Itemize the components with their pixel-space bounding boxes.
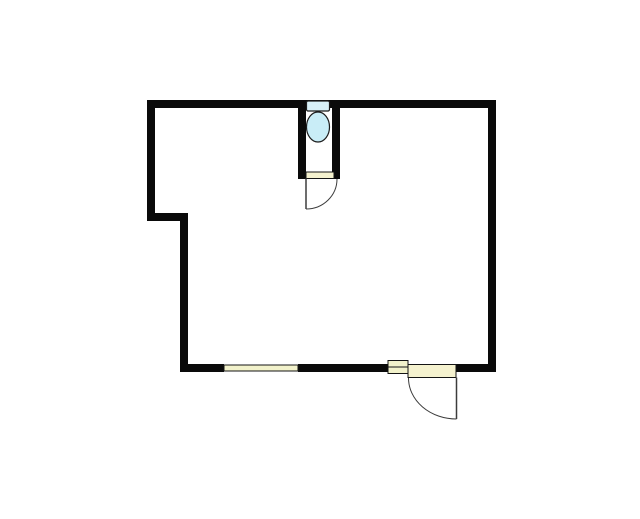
- entry-door-threshold: [408, 365, 456, 378]
- floor-plan-canvas: [0, 0, 640, 519]
- wc-door-swing-arc: [306, 179, 337, 209]
- wall-bottom-right: [456, 364, 496, 372]
- toilet-bowl: [307, 112, 330, 142]
- entry-door-swing-arc: [409, 378, 457, 419]
- window-bottom: [224, 365, 298, 371]
- wall-bottom-middle: [298, 364, 388, 372]
- wall-left-upper: [147, 100, 155, 221]
- wc-wall-left: [298, 108, 306, 179]
- toilet-tank: [307, 101, 330, 111]
- wc-door-sill: [306, 172, 334, 179]
- floor-plan: [0, 0, 640, 519]
- wall-right: [488, 100, 496, 372]
- wall-left-lower: [180, 213, 188, 372]
- wc-wall-right: [332, 108, 340, 179]
- wall-bottom-left: [180, 364, 224, 372]
